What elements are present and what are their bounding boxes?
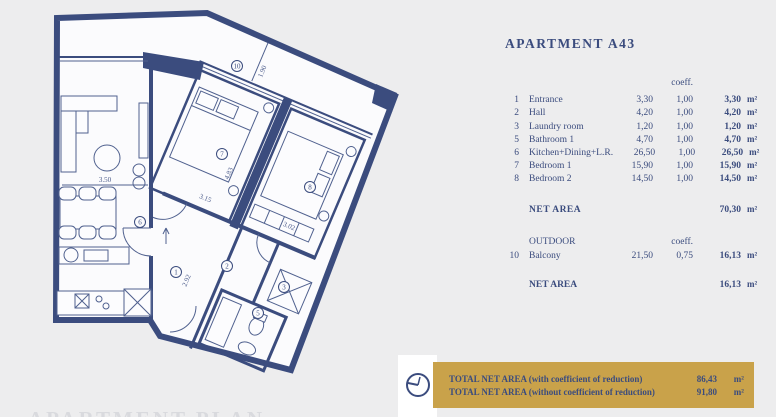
unit-label: m²: [741, 250, 761, 260]
outdoor-header-row: OUTDOOR coeff.: [505, 237, 761, 250]
coeff-header: coeff.: [653, 78, 693, 88]
table-row: 7 Bedroom 1 15,90 1,00 15,90 m²: [505, 160, 761, 173]
apartment-sheet: 1.90 4.83 3.15 3.02 2.92: [0, 0, 776, 417]
svg-text:8: 8: [308, 184, 312, 192]
dim-3-50: 3.50: [99, 176, 112, 184]
total-with-coeff-value: 86,43: [679, 374, 717, 384]
compass-clock-icon: [403, 370, 433, 400]
room-rows: 1 Entrance 3,30 1,00 3,30 m² 2 Hall 4,20…: [505, 94, 761, 186]
total-without-coeff-value: 91,80: [679, 387, 717, 397]
svg-text:6: 6: [138, 219, 142, 227]
room-label-laundry: 3: [279, 282, 290, 293]
net-area-value: 70,30: [693, 205, 741, 215]
net-area-value: 16,13: [693, 280, 741, 290]
unit-label: m²: [717, 387, 744, 397]
unit-label: m²: [743, 147, 763, 157]
net-area-label: NET AREA: [521, 205, 611, 215]
outdoor-rows: 10 Balcony 21,50 0,75 16,13 m²: [505, 250, 761, 263]
unit-label: m²: [741, 173, 761, 183]
unit-label: m²: [741, 121, 761, 131]
svg-text:1: 1: [174, 269, 178, 277]
svg-text:7: 7: [220, 151, 224, 159]
pouf: [133, 164, 145, 176]
table-row: 8 Bedroom 2 14,50 1,00 14,50 m²: [505, 173, 761, 186]
total-with-coeff-label: TOTAL NET AREA (with coefficient of redu…: [449, 374, 679, 384]
table-row: 10 Balcony 21,50 0,75 16,13 m²: [505, 250, 761, 263]
table-row: 1 Entrance 3,30 1,00 3,30 m²: [505, 94, 761, 107]
pouf: [133, 177, 145, 189]
outdoor-header: OUTDOOR: [521, 237, 611, 247]
total-without-coeff-row: TOTAL NET AREA (without coefficient of r…: [433, 387, 754, 397]
room-label-bedroom2: 8: [305, 182, 316, 193]
table-row: 3 Laundry room 1,20 1,00 1,20 m²: [505, 121, 761, 134]
table-row: 6 Kitchen+Dining+L.R. 26,50 1,00 26,50 m…: [505, 147, 761, 160]
svg-text:2: 2: [225, 263, 229, 271]
coeff-header: coeff.: [653, 237, 693, 247]
kitchen-sink: [64, 248, 78, 262]
table-row: 5 Bathroom 1 4,70 1,00 4,70 m²: [505, 134, 761, 147]
sofa: [61, 96, 117, 111]
totals-box: TOTAL NET AREA (with coefficient of redu…: [433, 362, 754, 408]
total-without-coeff-label: TOTAL NET AREA (without coefficient of r…: [449, 387, 679, 397]
apartment-title: APARTMENT A43: [505, 36, 761, 52]
room-label-hall: 2: [222, 261, 233, 272]
tv-unit: [139, 103, 148, 158]
net-area-label: NET AREA: [521, 280, 611, 290]
plan-caption: APARTMENT PLAN: [28, 407, 265, 417]
svg-text:5: 5: [256, 310, 260, 318]
unit-label: m²: [741, 94, 761, 104]
room-label-kitchen-dining: 6: [135, 217, 146, 228]
room-label-bathroom: 5: [253, 308, 264, 319]
svg-text:10: 10: [234, 63, 242, 71]
unit-label: m²: [741, 107, 761, 117]
room-label-bedroom1: 7: [217, 149, 228, 160]
unit-label: m²: [741, 134, 761, 144]
room-label-entrance: 1: [171, 267, 182, 278]
total-with-coeff-row: TOTAL NET AREA (with coefficient of redu…: [433, 374, 754, 384]
table-row: 2 Hall 4,20 1,00 4,20 m²: [505, 107, 761, 120]
svg-text:3: 3: [282, 284, 286, 292]
dining-table: [60, 196, 116, 229]
coeff-header-row: coeff.: [505, 78, 761, 91]
unit-label: m²: [741, 279, 761, 289]
outdoor-net-area-row: NET AREA 16,13 m²: [505, 279, 761, 292]
coffee-table: [94, 145, 120, 171]
area-table-panel: APARTMENT A43 coeff. 1 Entrance 3,30 1,0…: [505, 36, 761, 292]
unit-label: m²: [741, 160, 761, 170]
unit-label: m²: [717, 374, 744, 384]
net-area-row: NET AREA 70,30 m²: [505, 204, 761, 217]
room-label-balcony: 10: [232, 61, 243, 72]
unit-label: m²: [741, 204, 761, 214]
